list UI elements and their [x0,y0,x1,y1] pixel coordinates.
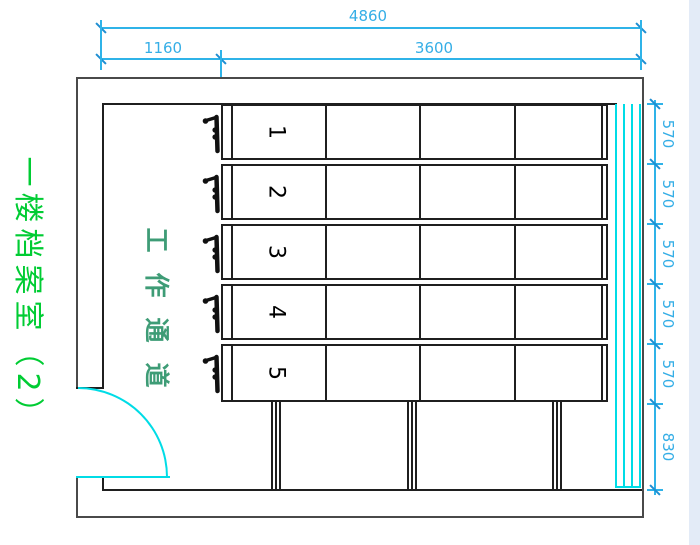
dim-top-total-line [101,27,642,29]
window-line [639,104,641,488]
dim-right-label: 570 [659,300,677,329]
shelf-divider [601,286,603,338]
shelf-rail [271,402,273,490]
shelf-rail [411,402,413,490]
floor-plan-canvas: 4860 1160 3600 [0,0,700,545]
shelf-divider [231,166,233,218]
dim-right-label: 570 [659,180,677,209]
dim-top-split-line [101,58,642,60]
window-line [631,104,633,488]
shelf-divider [601,226,603,278]
shelf-divider [419,346,421,400]
shelf-number: 5 [264,366,289,380]
shelf-divider [601,106,603,158]
dim-right-label: 570 [659,240,677,269]
shelf-divider [231,346,233,400]
shelf-divider [419,166,421,218]
door-swing-arc-icon [78,387,168,477]
shelf-rail [407,402,409,490]
shelf-divider [325,346,327,400]
shelf-divider [514,346,516,400]
shelf-rail [556,402,558,490]
shelf-divider [231,286,233,338]
shelf-divider [514,166,516,218]
dim-extension-line [640,20,642,70]
wall-inner-left-stub [102,477,104,491]
shelf-divider [231,106,233,158]
dim-extension-line [100,20,102,70]
shelf-number: 2 [264,185,289,199]
screenshot-edge-strip [689,0,700,545]
dim-right-bottom-label: 830 [659,433,677,462]
shelf-divider [601,346,603,400]
shelf-number: 1 [264,125,289,139]
shelf-crank-handle-icon [202,352,222,396]
wall-outer-left-lower [76,477,78,518]
wall-outer-top [76,77,644,79]
passage-label-char: 通 [140,317,176,342]
shelf-rail [560,402,562,490]
wall-outer-bottom [76,516,644,518]
window-line [623,104,625,488]
shelf-rail [552,402,554,490]
shelf-divider [325,286,327,338]
window-sill [615,486,641,488]
shelf-divider [514,286,516,338]
dim-right-label: 570 [659,120,677,149]
shelf-divider [419,286,421,338]
wall-outer-left-upper [76,77,78,389]
shelf-rail [275,402,277,490]
passage-label-char: 道 [140,362,176,387]
window-line [615,104,617,488]
shelf-divider [419,226,421,278]
wall-outer-right [642,77,644,518]
wall-inner-left [102,103,104,389]
shelf-crank-handle-icon [202,172,222,216]
shelf-divider [514,226,516,278]
shelf-divider [601,166,603,218]
shelf-number: 3 [264,245,289,259]
shelf-divider [325,166,327,218]
shelf-crank-handle-icon [202,292,222,336]
shelf-crank-handle-icon [202,232,222,276]
shelf-rail [415,402,417,490]
shelf-divider [231,226,233,278]
shelf-divider [325,106,327,158]
shelf-crank-handle-icon [202,112,222,156]
shelf-rail [279,402,281,490]
shelf-divider [514,106,516,158]
shelf-divider [325,226,327,278]
passage-label-char: 作 [140,272,176,297]
passage-label-char: 工 [140,227,176,252]
dim-right-label: 570 [659,360,677,389]
dim-top-right-label: 3600 [415,39,453,57]
dim-right-line [654,100,656,495]
shelf-divider [419,106,421,158]
shelf-number: 4 [264,305,289,319]
dim-extension-line [220,50,222,77]
dim-top-left-label: 1160 [144,39,182,57]
dim-top-total-label: 4860 [349,7,387,25]
page-title: 一楼档案室（2） [9,156,53,433]
